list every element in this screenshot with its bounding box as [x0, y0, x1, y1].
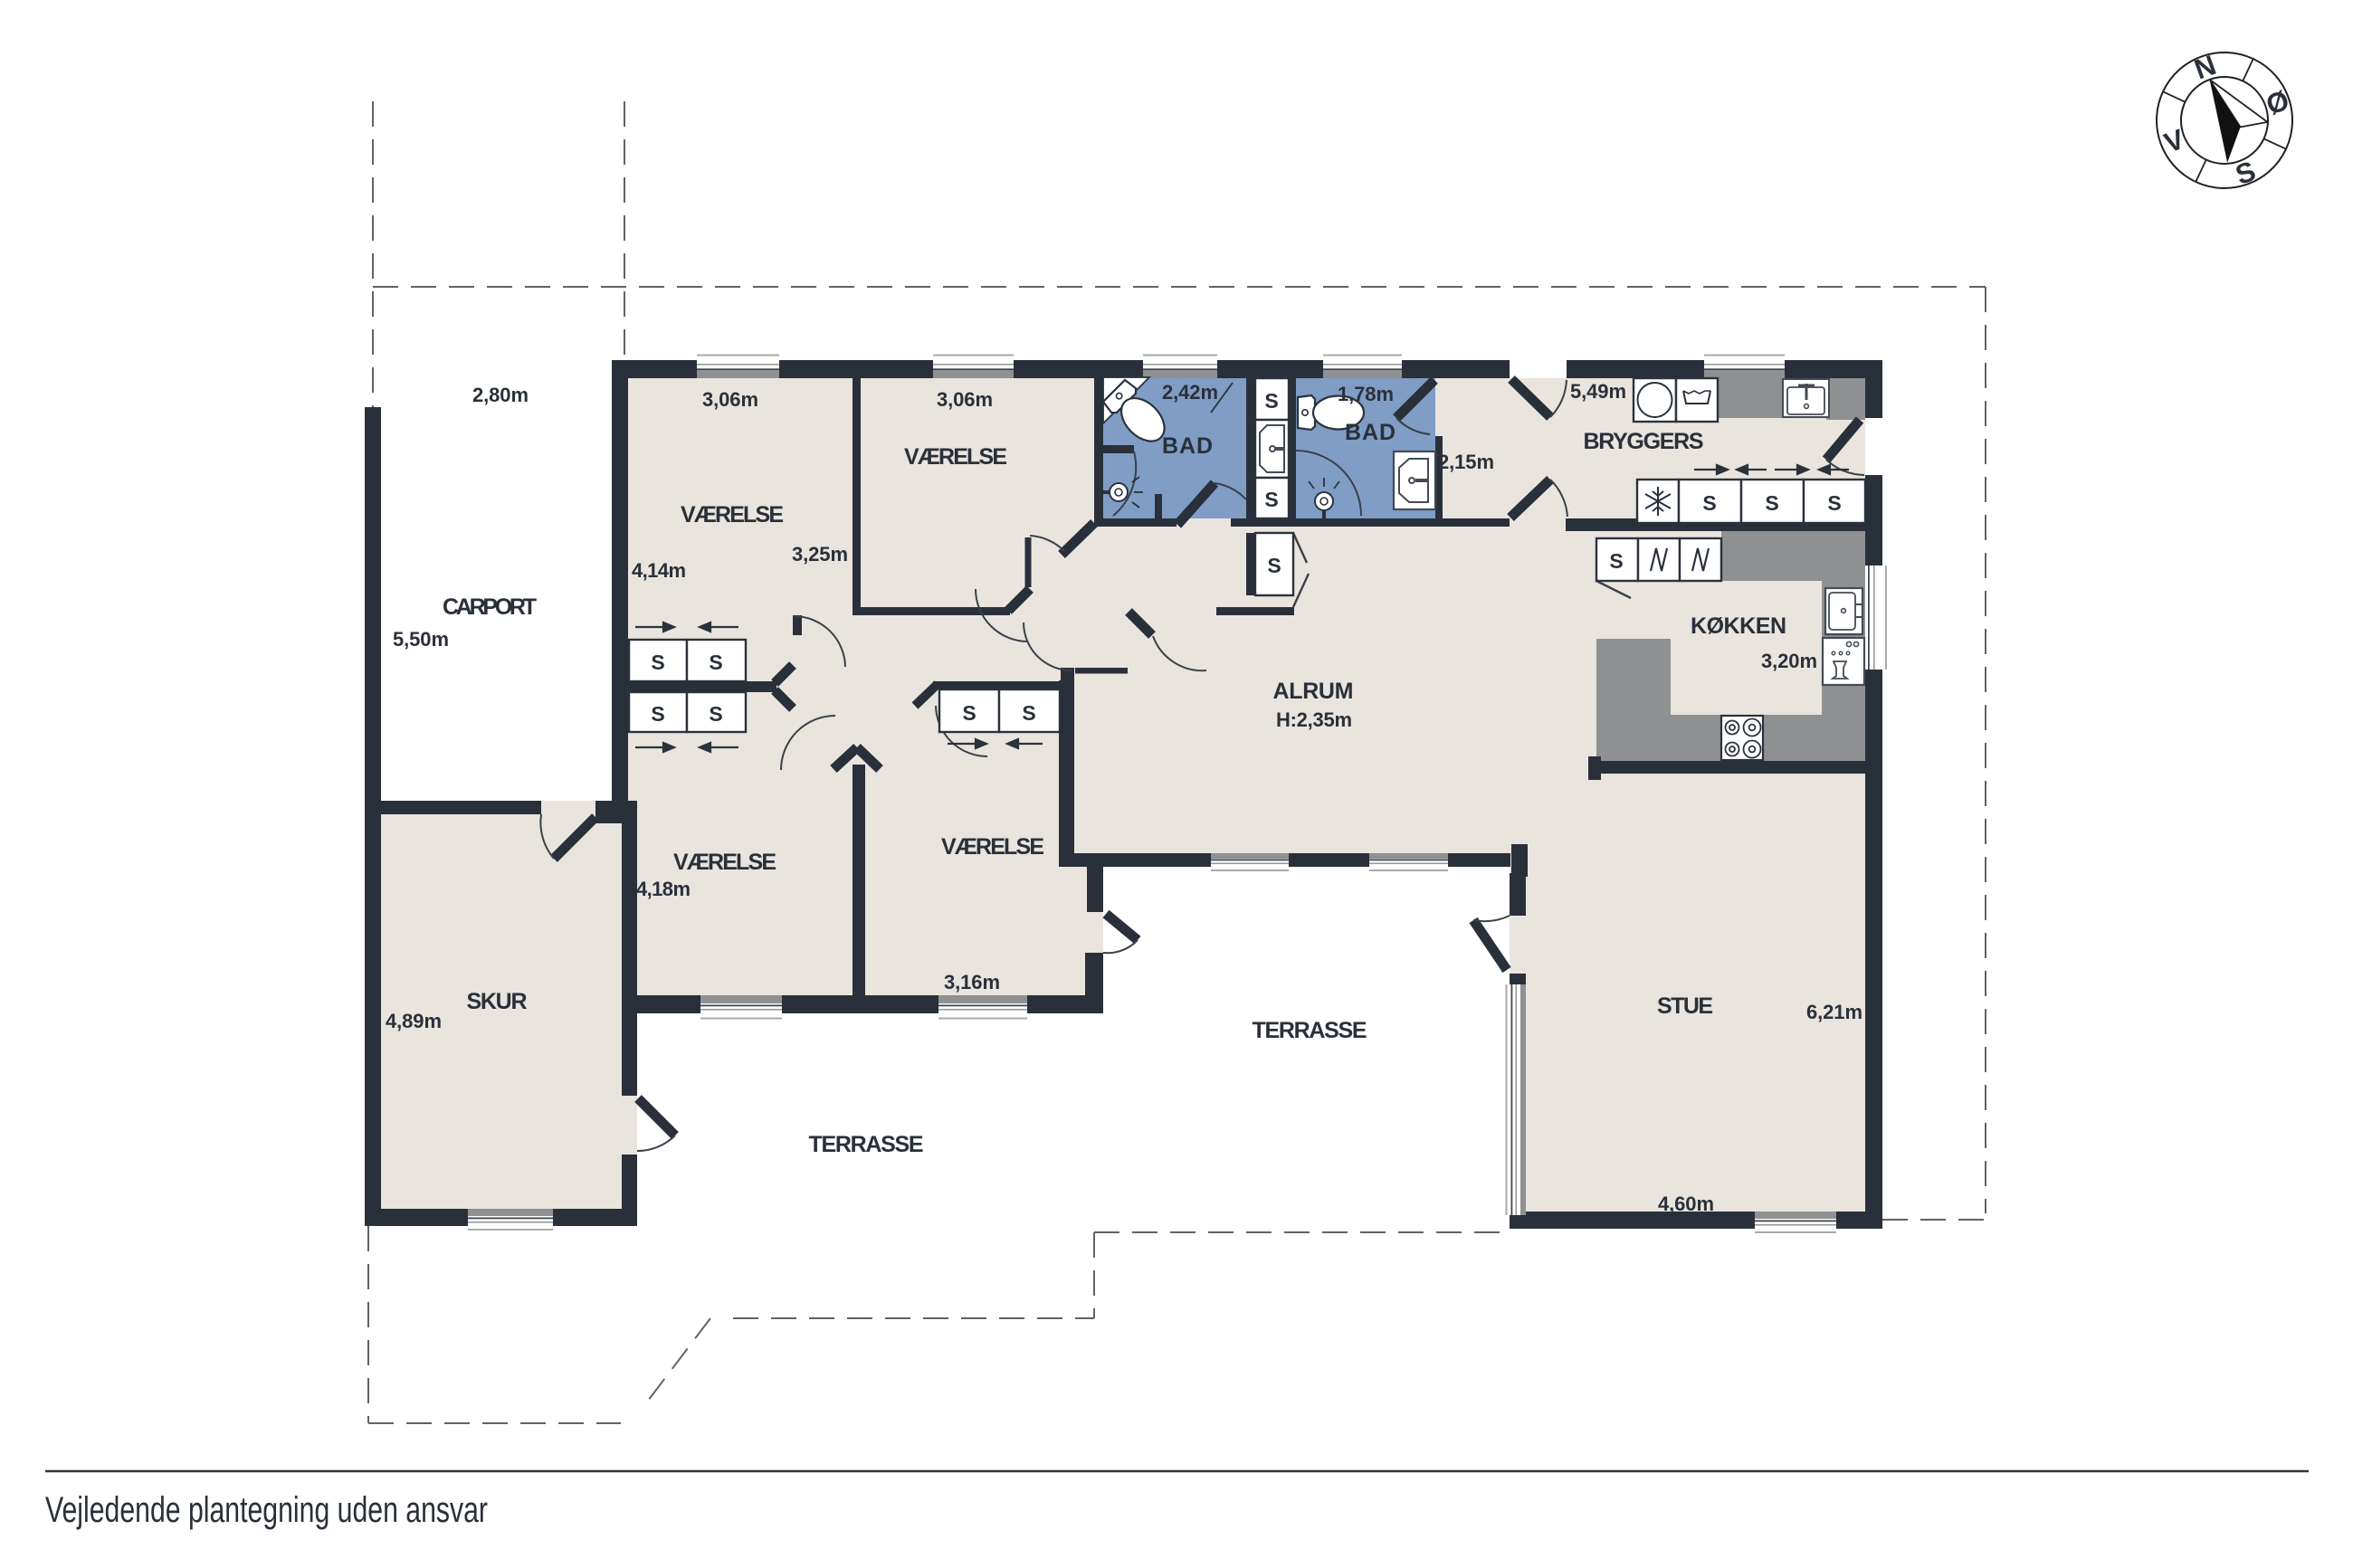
svg-text:S: S — [1264, 488, 1278, 511]
svg-text:BAD: BAD — [1345, 420, 1396, 445]
svg-text:SKUR: SKUR — [467, 989, 528, 1014]
svg-text:5,49m: 5,49m — [1570, 380, 1626, 403]
svg-text:S: S — [709, 702, 722, 726]
svg-text:VÆRELSE: VÆRELSE — [904, 444, 1007, 470]
svg-text:4,60m: 4,60m — [1658, 1193, 1714, 1215]
svg-text:4,14m: 4,14m — [632, 559, 686, 582]
svg-text:S: S — [651, 651, 664, 674]
svg-text:S: S — [962, 701, 976, 725]
svg-text:S: S — [1267, 554, 1281, 577]
svg-text:4,89m: 4,89m — [386, 1010, 442, 1032]
svg-text:2,80m: 2,80m — [472, 384, 529, 406]
svg-text:ALRUM: ALRUM — [1273, 679, 1354, 704]
svg-text:VÆRELSE: VÆRELSE — [941, 834, 1044, 860]
svg-text:TERRASSE: TERRASSE — [1253, 1018, 1367, 1043]
svg-text:6,21m: 6,21m — [1806, 1001, 1862, 1023]
svg-text:S: S — [1264, 389, 1278, 413]
svg-text:3,20m: 3,20m — [1761, 650, 1817, 672]
svg-text:3,25m: 3,25m — [792, 543, 848, 565]
svg-text:2,15m: 2,15m — [1438, 451, 1494, 473]
svg-text:S: S — [1609, 549, 1623, 573]
svg-text:3,16m: 3,16m — [944, 971, 1000, 993]
svg-text:VÆRELSE: VÆRELSE — [681, 502, 784, 527]
svg-text:CARPORT: CARPORT — [443, 594, 537, 620]
svg-text:H:2,35m: H:2,35m — [1276, 708, 1352, 731]
svg-text:S: S — [1827, 491, 1841, 515]
svg-text:S: S — [1702, 491, 1716, 515]
svg-text:Vejledende plantegning uden an: Vejledende plantegning uden ansvar — [45, 1490, 488, 1530]
svg-text:S: S — [1022, 701, 1035, 725]
svg-text:VÆRELSE: VÆRELSE — [673, 850, 776, 875]
svg-text:5,50m: 5,50m — [393, 628, 449, 651]
svg-text:2,42m: 2,42m — [1162, 381, 1218, 404]
svg-text:STUE: STUE — [1657, 993, 1713, 1019]
svg-text:BAD: BAD — [1162, 433, 1213, 459]
svg-text:1,78m: 1,78m — [1338, 383, 1394, 405]
svg-text:3,06m: 3,06m — [937, 388, 993, 411]
svg-text:KØKKEN: KØKKEN — [1691, 613, 1786, 639]
svg-text:BRYGGERS: BRYGGERS — [1584, 429, 1704, 454]
svg-text:4,18m: 4,18m — [636, 878, 691, 900]
svg-text:S: S — [651, 702, 664, 726]
svg-text:3,06m: 3,06m — [702, 388, 758, 411]
svg-text:S: S — [1765, 491, 1778, 515]
svg-text:TERRASSE: TERRASSE — [809, 1132, 924, 1157]
svg-text:S: S — [709, 651, 722, 674]
